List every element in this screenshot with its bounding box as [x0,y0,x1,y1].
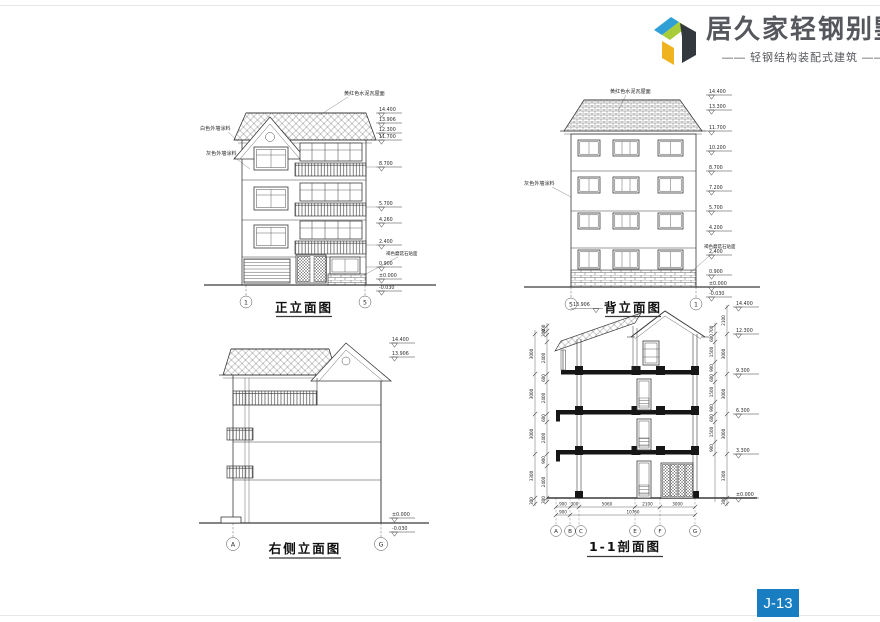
level-mark: 0.900 [379,261,393,267]
back-elevation-marks: 14.400 13.300 11.700 10.200 8.700 7.200 … [706,89,732,301]
axis-bubble: 1 [244,299,248,306]
axis-bubble: G [693,529,697,535]
page-number: J-13 [763,595,792,612]
roof-material-label: 黄红色水泥瓦屋面 [610,88,651,95]
axis-bubble: A [231,541,236,548]
level-mark: ±0.000 [392,512,410,518]
level-mark: 4.200 [709,225,723,231]
level-mark: 10.200 [709,145,726,151]
level-mark: 7.200 [709,185,723,191]
level-mark: -0.030 [392,526,407,532]
front-elevation-title: 正立面图 [275,300,333,315]
dim: 300 [571,502,579,507]
section-doors [637,379,651,498]
level-mark: 14.400 [736,301,753,307]
axis-bubble: 5 [363,299,367,306]
level-mark: 5.700 [709,205,723,211]
garage-door [244,259,290,283]
side-building [199,343,429,523]
axis-bubble: G [379,541,384,548]
level-mark: 4.260 [379,217,393,223]
dim: 5060 [602,502,613,507]
level-mark: 0.900 [709,269,723,275]
dim: 1500 [709,426,714,437]
company-tagline: —— 轻钢结构装配式建筑 —— [706,49,880,65]
level-mark: ±0.000 [736,492,754,498]
dim: 2400 [541,392,546,403]
section-right-dims: 700 600 1500 900 600 1500 900 600 1500 9… [709,305,729,506]
company-logo: 居久家轻钢别墅 —— 轻钢结构装配式建筑 —— [652,15,880,67]
entry-doors [296,255,327,283]
level-mark: 14.400 [379,107,396,113]
stone-label: 褐色蘑菇石贴面 [704,243,736,250]
level-mark: 13.300 [709,104,726,110]
axis-bubble: E [633,529,637,535]
dim: 300 [541,329,546,337]
glazed-doors [661,463,693,498]
side-elevation-marks: 14.400 13.906 ±0.000 -0.030 [389,337,415,536]
dim: 1500 [709,346,714,357]
stone-label: 褐色蘑菇石贴面 [386,250,418,257]
dim: 900 [559,510,567,515]
dim: 1500 [709,386,714,397]
dim: 3000 [529,388,534,399]
level-mark: 9.300 [736,368,750,374]
stone-base [571,270,696,287]
dim: 3300 [529,470,534,481]
dim: 700 [709,325,714,333]
dim: 600 [709,414,714,422]
section-drawing: 13.906 3000 3000 3000 3300 300 400 300 2… [523,293,778,568]
section-axes: A B C E F G [551,526,701,537]
dim-total: 10760 [626,510,639,515]
level-mark: 13.906 [573,302,590,308]
dim: 2400 [541,476,546,487]
dim: 600 [541,374,546,382]
dim: 900 [709,364,714,372]
level-mark: -0.030 [379,285,394,291]
level-mark: 2.400 [379,239,393,245]
logo-cube-icon [652,15,698,67]
front-left-windows [254,147,288,248]
side-elevation-drawing: 14.400 13.906 ±0.000 -0.030 A G 右侧立面图 [193,325,438,565]
level-mark: 11.700 [379,134,396,140]
level-mark: 12.300 [379,127,396,133]
level-mark: 14.400 [392,337,409,343]
sheet-bottom-border [0,615,880,616]
stone-base [328,274,366,285]
back-elevation-drawing: 14.400 13.300 11.700 10.200 8.700 7.200 … [518,85,768,325]
roof-material-label: 黄红色水泥瓦屋面 [344,90,385,97]
section-left-dims: 3000 3000 3000 3300 300 400 300 2400 600… [529,323,549,506]
company-name: 居久家轻钢别墅 [706,15,880,44]
dim: 600 [541,414,546,422]
dim: 300 [529,497,534,505]
dim: 900 [559,502,567,507]
level-mark: 13.906 [379,117,396,123]
level-mark: 5.700 [379,201,393,207]
level-mark: 14.400 [709,89,726,95]
dim: 300 [541,496,546,504]
dim: 2400 [541,432,546,443]
wall-white-label: 白色外墙涂料 [200,125,231,132]
section-title: 1-1剖面图 [589,539,661,554]
dim: 900 [541,456,546,464]
dim: 2100 [721,315,726,326]
dim: 2100 [642,502,653,507]
front-elevation-drawing: 14.400 13.906 12.300 11.700 8.700 5.700 … [198,85,443,325]
dim: 600 [709,374,714,382]
axis-bubble: A [554,529,558,535]
dim: 3000 [721,348,726,359]
axis-bubble: B [568,529,572,535]
front-building [204,113,436,285]
dim: 3000 [672,502,683,507]
level-mark: 12.300 [736,328,753,334]
section-level-marks: 14.400 12.300 9.300 6.300 3.300 ±0.000 [733,301,759,502]
wall-gray-label: 灰色外墙涂料 [206,150,237,157]
dim: 600 [709,334,714,342]
side-elevation-title: 右侧立面图 [268,541,342,556]
sheet-top-border [0,5,880,6]
level-mark: 3.300 [736,448,750,454]
level-mark: 8.700 [379,161,393,167]
dim: 900 [709,444,714,452]
level-mark: ±0.000 [379,273,397,279]
level-mark: ±0.000 [709,281,727,287]
drawing-sheet: 居久家轻钢别墅 —— 轻钢结构装配式建筑 —— [0,0,880,622]
level-mark: 13.906 [392,351,409,357]
front-balcony-windows [295,143,366,254]
dim: 300 [721,497,726,505]
section-bottom-dims: 900 300 5060 2100 3000 900 10760 [554,498,697,525]
dim: 900 [709,404,714,412]
dim: 2400 [541,352,546,363]
section-structure [547,311,757,498]
page-number-badge: J-13 [757,589,799,617]
dim: 3000 [721,428,726,439]
level-mark: 8.700 [709,165,723,171]
dim: 3000 [529,428,534,439]
level-mark: 11.700 [709,125,726,131]
entry-step [221,517,241,523]
level-mark: 6.300 [736,408,750,414]
dim: 3000 [529,348,534,359]
axis-bubble: F [658,529,661,535]
dim: 3300 [721,470,726,481]
axis-bubble: C [579,529,583,535]
dim: 3000 [721,388,726,399]
section-ridge-mark: 13.906 [571,302,603,313]
wall-gray-label: 灰色外墙涂料 [524,180,555,187]
